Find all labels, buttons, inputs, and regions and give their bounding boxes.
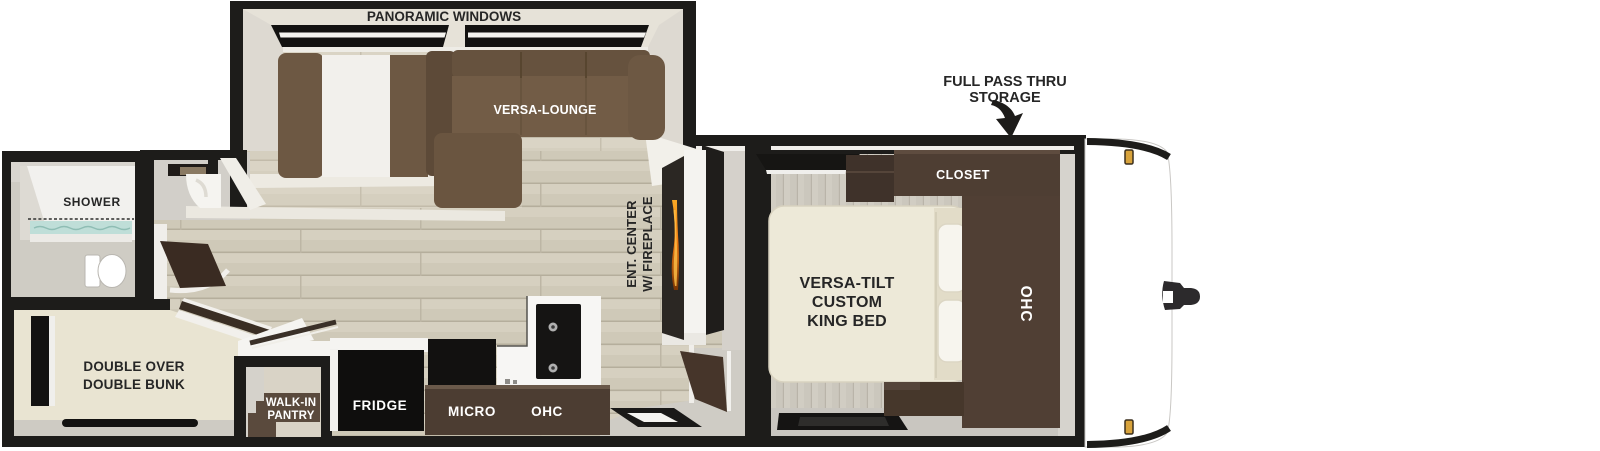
svg-text:MICRO: MICRO	[448, 404, 496, 419]
svg-text:OHC: OHC	[1017, 286, 1034, 323]
svg-text:VERSA-LOUNGE: VERSA-LOUNGE	[493, 103, 596, 117]
svg-text:STORAGE: STORAGE	[969, 90, 1041, 106]
svg-text:FULL PASS THRU: FULL PASS THRU	[943, 74, 1067, 90]
svg-text:DOUBLE OVER: DOUBLE OVER	[83, 359, 184, 374]
svg-text:ENT. CENTER: ENT. CENTER	[624, 200, 639, 288]
svg-text:CUSTOM: CUSTOM	[812, 294, 882, 311]
svg-text:PANORAMIC WINDOWS: PANORAMIC WINDOWS	[367, 9, 521, 24]
svg-text:W/ FIREPLACE: W/ FIREPLACE	[640, 196, 655, 292]
svg-text:CLOSET: CLOSET	[936, 168, 990, 182]
svg-text:PANTRY: PANTRY	[267, 410, 314, 422]
svg-text:FRIDGE: FRIDGE	[353, 398, 408, 413]
svg-text:WALK-IN: WALK-IN	[266, 397, 317, 409]
svg-text:VERSA-TILT: VERSA-TILT	[799, 275, 894, 292]
svg-text:OHC: OHC	[531, 404, 563, 419]
svg-text:SHOWER: SHOWER	[63, 195, 121, 209]
svg-text:KING BED: KING BED	[807, 313, 887, 330]
svg-text:DOUBLE BUNK: DOUBLE BUNK	[83, 377, 185, 392]
